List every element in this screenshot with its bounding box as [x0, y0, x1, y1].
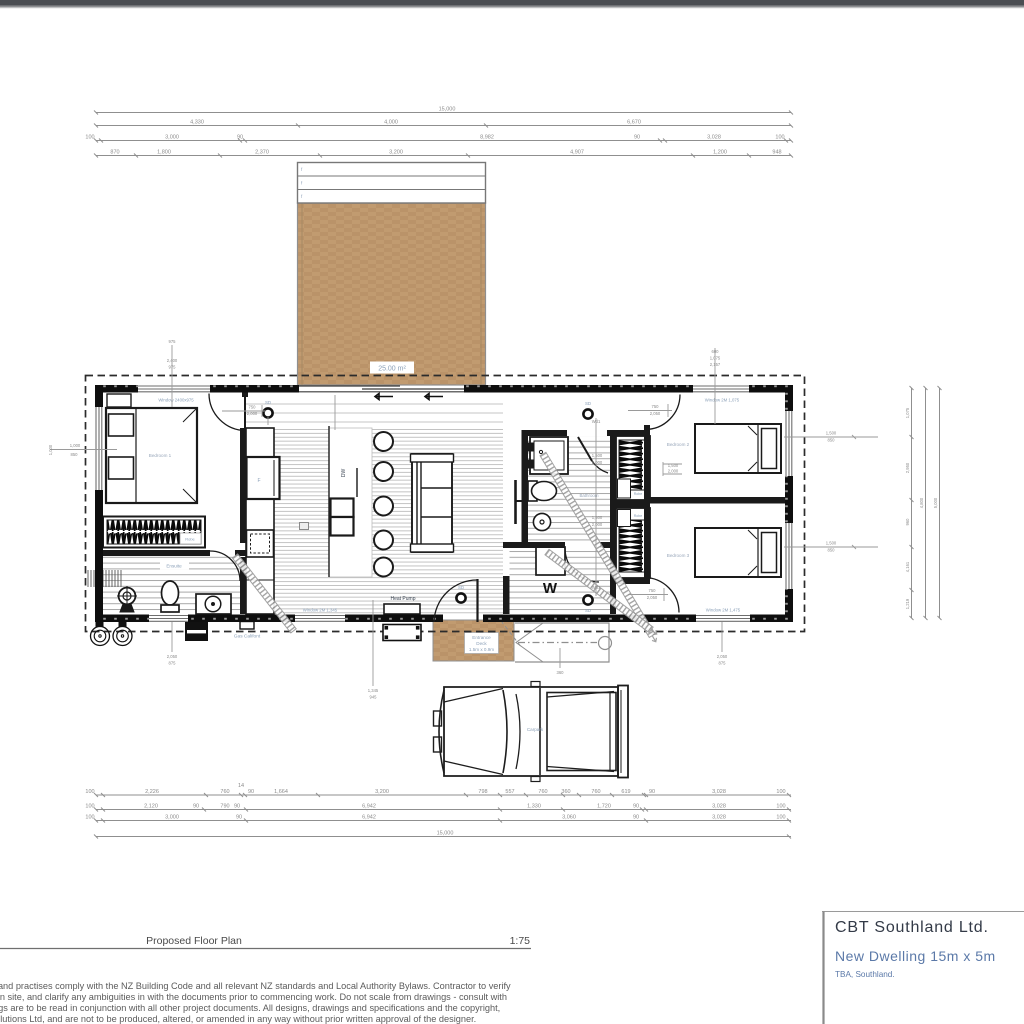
svg-text:100: 100 — [85, 804, 94, 810]
svg-text:1,720: 1,720 — [597, 804, 611, 810]
svg-text:100: 100 — [85, 815, 94, 821]
svg-text:100: 100 — [85, 789, 94, 795]
svg-text:W: W — [543, 580, 558, 597]
svg-text:5,000: 5,000 — [933, 497, 938, 508]
svg-text:F: F — [257, 478, 260, 484]
svg-text:875: 875 — [169, 661, 177, 666]
svg-text:90: 90 — [236, 815, 242, 821]
svg-text:870: 870 — [110, 150, 119, 156]
svg-text:Window 2M 1,345: Window 2M 1,345 — [303, 608, 338, 613]
svg-text:all dimensions on site, and cl: all dimensions on site, and clarify any … — [0, 992, 507, 1002]
svg-text:90: 90 — [649, 789, 655, 795]
svg-text:Heat Pump: Heat Pump — [390, 596, 415, 602]
svg-text:2,000: 2,000 — [592, 522, 603, 527]
svg-text:SD: SD — [585, 608, 591, 613]
svg-text:1,075: 1,075 — [710, 356, 721, 361]
svg-text:Bedroom 1: Bedroom 1 — [149, 453, 172, 458]
svg-text:875: 875 — [719, 661, 727, 666]
svg-text:850: 850 — [828, 438, 836, 443]
svg-text:2,050: 2,050 — [167, 654, 178, 659]
svg-text:557: 557 — [505, 789, 514, 795]
svg-text:760: 760 — [220, 789, 229, 795]
svg-text:90: 90 — [248, 789, 254, 795]
svg-text:360: 360 — [561, 789, 570, 795]
svg-text:1,500: 1,500 — [592, 453, 603, 458]
svg-text:3,000: 3,000 — [165, 815, 179, 821]
svg-text:SD: SD — [585, 401, 591, 406]
svg-text:798: 798 — [478, 789, 487, 795]
svg-text:New Dwelling 15m x 5m: New Dwelling 15m x 5m — [835, 948, 996, 964]
svg-text:Deck: Deck — [476, 641, 487, 646]
svg-text:100: 100 — [776, 789, 785, 795]
svg-text:4,330: 4,330 — [190, 120, 204, 126]
svg-text:2,950: 2,950 — [905, 462, 910, 473]
svg-text:90: 90 — [234, 804, 240, 810]
svg-text:750: 750 — [649, 588, 657, 593]
svg-text:Window 2400x975: Window 2400x975 — [158, 398, 194, 403]
svg-text:8,982: 8,982 — [480, 135, 494, 141]
svg-text:3,200: 3,200 — [375, 789, 389, 795]
svg-text:90: 90 — [634, 135, 640, 141]
svg-text:1,500: 1,500 — [826, 541, 837, 546]
svg-text:Wd1: Wd1 — [592, 419, 601, 424]
svg-text:Proposed Floor Plan: Proposed Floor Plan — [146, 935, 242, 947]
svg-text:90: 90 — [633, 815, 639, 821]
svg-text:2,050: 2,050 — [717, 654, 728, 659]
svg-text:Carpark: Carpark — [527, 727, 544, 732]
svg-text:3,060: 3,060 — [562, 815, 576, 821]
svg-text:6,942: 6,942 — [362, 804, 376, 810]
svg-text:790: 790 — [220, 804, 229, 810]
svg-text:1,800: 1,800 — [157, 150, 171, 156]
svg-text:1.5m x 0.9m: 1.5m x 0.9m — [469, 647, 494, 652]
svg-text:100: 100 — [776, 804, 785, 810]
svg-text:945: 945 — [370, 695, 378, 700]
svg-text:3,028: 3,028 — [712, 789, 726, 795]
svg-text:14: 14 — [238, 783, 244, 789]
svg-text:1,500: 1,500 — [826, 431, 837, 436]
svg-text:Robe: Robe — [634, 492, 643, 496]
svg-text:2,050: 2,050 — [647, 595, 658, 600]
svg-text:1,664: 1,664 — [274, 789, 288, 795]
svg-text:Entrance: Entrance — [472, 635, 491, 640]
svg-text:1,345: 1,345 — [368, 688, 379, 693]
svg-text:90: 90 — [633, 804, 639, 810]
svg-text:SD: SD — [458, 585, 464, 590]
svg-text:975: 975 — [169, 365, 177, 370]
svg-text:Robe: Robe — [185, 537, 195, 542]
svg-text:1,000: 1,000 — [70, 443, 81, 448]
svg-text:100: 100 — [775, 135, 784, 141]
svg-text:3,028: 3,028 — [712, 804, 726, 810]
svg-text:All building work and practise: All building work and practises comply w… — [0, 981, 511, 991]
svg-text:2,226: 2,226 — [145, 789, 159, 795]
svg-text:Window 2M 1,075: Window 2M 1,075 — [705, 398, 740, 403]
svg-text:850: 850 — [71, 452, 79, 457]
svg-text:Bedroom 3: Bedroom 3 — [667, 553, 690, 558]
svg-text:1,500: 1,500 — [592, 515, 603, 520]
svg-text:750: 750 — [249, 405, 257, 410]
svg-text:3,000: 3,000 — [165, 135, 179, 141]
svg-text:1:75: 1:75 — [510, 935, 531, 947]
svg-text:Gas Califont: Gas Califont — [234, 634, 261, 640]
svg-text:These drawings are to be read: These drawings are to be read in conjunc… — [0, 1003, 500, 1013]
svg-text:Wd1: Wd1 — [592, 585, 601, 590]
svg-text:975: 975 — [169, 339, 177, 344]
svg-text:948: 948 — [772, 150, 781, 156]
svg-text:15,000: 15,000 — [439, 107, 456, 113]
svg-text:CBT Southland Ltd.: CBT Southland Ltd. — [835, 919, 989, 936]
svg-text:6,670: 6,670 — [627, 120, 641, 126]
svg-text:DW: DW — [341, 469, 347, 478]
svg-text:600: 600 — [712, 349, 720, 354]
svg-text:1,219: 1,219 — [905, 598, 910, 609]
svg-text:1,200: 1,200 — [713, 150, 727, 156]
svg-text:90: 90 — [237, 135, 243, 141]
svg-text:1,075: 1,075 — [905, 407, 910, 418]
svg-text:3,028: 3,028 — [707, 135, 721, 141]
svg-text:760: 760 — [591, 789, 600, 795]
svg-text:2,400: 2,400 — [167, 358, 178, 363]
svg-text:2,050: 2,050 — [650, 411, 661, 416]
svg-text:750: 750 — [652, 404, 660, 409]
svg-text:of CBT Solutions Ltd, and are: of CBT Solutions Ltd, and are not to be … — [0, 1014, 476, 1024]
svg-text:850: 850 — [828, 548, 836, 553]
svg-text:Robe: Robe — [634, 514, 643, 518]
svg-text:4,907: 4,907 — [570, 150, 584, 156]
svg-text:1,000: 1,000 — [48, 444, 53, 455]
svg-text:4,000: 4,000 — [384, 120, 398, 126]
svg-text:2,120: 2,120 — [144, 804, 158, 810]
svg-text:25.00 m²: 25.00 m² — [378, 366, 406, 373]
svg-text:2,000: 2,000 — [668, 469, 679, 474]
svg-text:90: 90 — [193, 804, 199, 810]
svg-text:Bedroom 2: Bedroom 2 — [667, 442, 690, 447]
svg-text:1,330: 1,330 — [527, 804, 541, 810]
svg-text:Window 2M 1,475: Window 2M 1,475 — [706, 608, 741, 613]
svg-text:2,370: 2,370 — [255, 150, 269, 156]
svg-text:SD: SD — [265, 400, 271, 405]
svg-text:960: 960 — [905, 518, 910, 526]
svg-text:TBA, Southland.: TBA, Southland. — [835, 970, 895, 979]
svg-text:6,942: 6,942 — [362, 815, 376, 821]
svg-text:Ensuite: Ensuite — [166, 564, 182, 569]
svg-text:100: 100 — [776, 815, 785, 821]
svg-text:619: 619 — [621, 789, 630, 795]
svg-text:4,800: 4,800 — [919, 497, 924, 508]
svg-text:1,500: 1,500 — [668, 463, 679, 468]
svg-text:3,028: 3,028 — [712, 815, 726, 821]
svg-text:2,157: 2,157 — [710, 362, 721, 367]
svg-text:760: 760 — [538, 789, 547, 795]
svg-text:15,000: 15,000 — [437, 831, 454, 837]
svg-text:3,200: 3,200 — [389, 150, 403, 156]
svg-text:2,000: 2,000 — [592, 460, 603, 465]
svg-text:100: 100 — [85, 135, 94, 141]
svg-text:360: 360 — [557, 670, 565, 675]
svg-text:4,161: 4,161 — [905, 561, 910, 572]
svg-text:2,000: 2,000 — [247, 411, 258, 416]
